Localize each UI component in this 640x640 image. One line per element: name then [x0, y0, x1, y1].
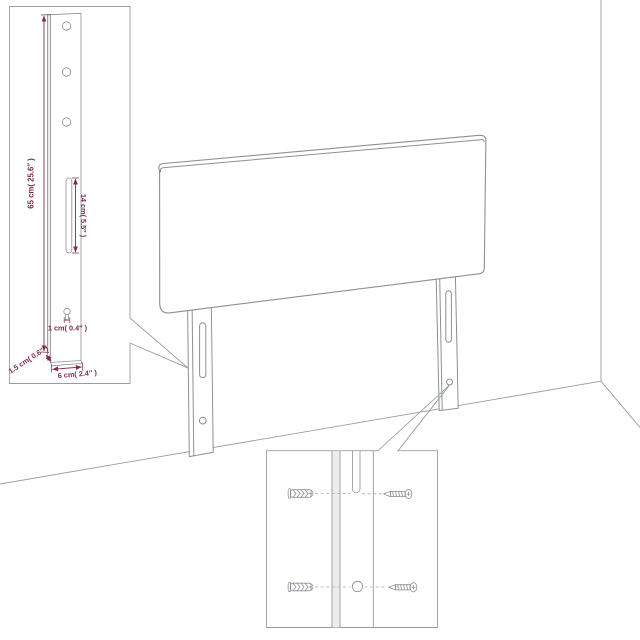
headboard-left-leg: [188, 304, 214, 457]
mounting-detail-inset: [267, 451, 438, 628]
leg-detail-inset: 65 cm( 25.6″ ) 14 cm( 5.5″ ) 1 cm( 0.4″ …: [7, 7, 130, 384]
height-dimension-label: 65 cm( 25.6″ ): [27, 158, 36, 209]
keyhole-dimension-label: 1 cm( 0.4″ ): [48, 324, 88, 333]
diagram-canvas: 65 cm( 25.6″ ) 14 cm( 5.5″ ) 1 cm( 0.4″ …: [0, 0, 640, 640]
right-leg-hole: [447, 379, 453, 385]
left-leg-slot: [200, 323, 206, 378]
floor-line-right: [601, 381, 640, 427]
slot-dimension-label: 14 cm( 5.5″ ): [79, 194, 88, 238]
leg-detail-callout: [130, 318, 188, 368]
right-leg-slot: [446, 291, 452, 343]
headboard-dimension-diagram: 65 cm( 25.6″ ) 14 cm( 5.5″ ) 1 cm( 0.4″ …: [0, 0, 640, 640]
left-leg-hole: [199, 417, 206, 424]
headboard-right-leg: [436, 276, 458, 410]
